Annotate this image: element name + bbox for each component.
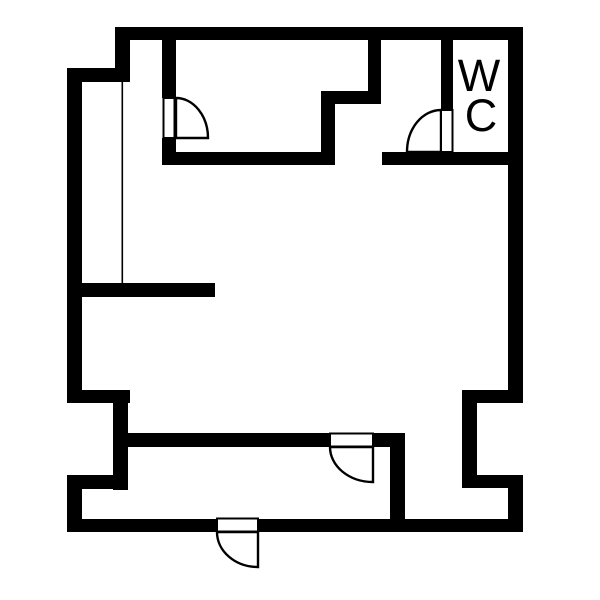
hall-lower-door-leaf [330, 434, 373, 447]
left-room-divider-wall-wall-segment [82, 283, 215, 297]
entrance-door-leaf [217, 519, 258, 532]
lower-wall-left-wall-segment [127, 433, 330, 447]
floor-plan-canvas: W C [0, 0, 600, 600]
walls-layer [67, 27, 523, 532]
room1-wall-above-door-wall-segment [162, 37, 176, 98]
hall-top-wall-right-wall-segment [382, 152, 509, 165]
right-notch-bottom-wall-wall-segment [477, 475, 523, 488]
wc-door-leaf [441, 110, 453, 152]
outer-right-wall-upper-wall-segment [508, 27, 523, 403]
entrance-door-swing-arc [217, 532, 258, 567]
hall-top-wall-left-wall-segment [162, 152, 335, 165]
lower-wall-right-wall-segment [373, 433, 392, 447]
wc-door-swing-arc [407, 110, 441, 152]
outer-left-wall-upper-wall-segment [67, 68, 82, 403]
left-room-partition-line [122, 82, 124, 283]
outer-bottom-wall-left-wall-segment [67, 519, 217, 532]
wc-wall-above-door-wall-segment [441, 27, 453, 110]
room-top-left-door-swing-arc [176, 98, 208, 138]
room-top-left-door-leaf [164, 98, 175, 138]
lower-vertical-wall-wall-segment [390, 433, 405, 519]
wc-room-label-line2: C [465, 90, 498, 141]
outer-top-wall-wall-segment [115, 27, 523, 40]
right-notch-inner-wall-wall-segment [462, 390, 477, 488]
outer-bottom-wall-right-wall-segment [258, 519, 523, 532]
floor-plan-page: W C [0, 0, 600, 600]
room2-step-wall-v-left-wall-segment [321, 91, 335, 165]
hall-lower-door-swing-arc [330, 447, 373, 482]
doors-layer [164, 98, 453, 567]
